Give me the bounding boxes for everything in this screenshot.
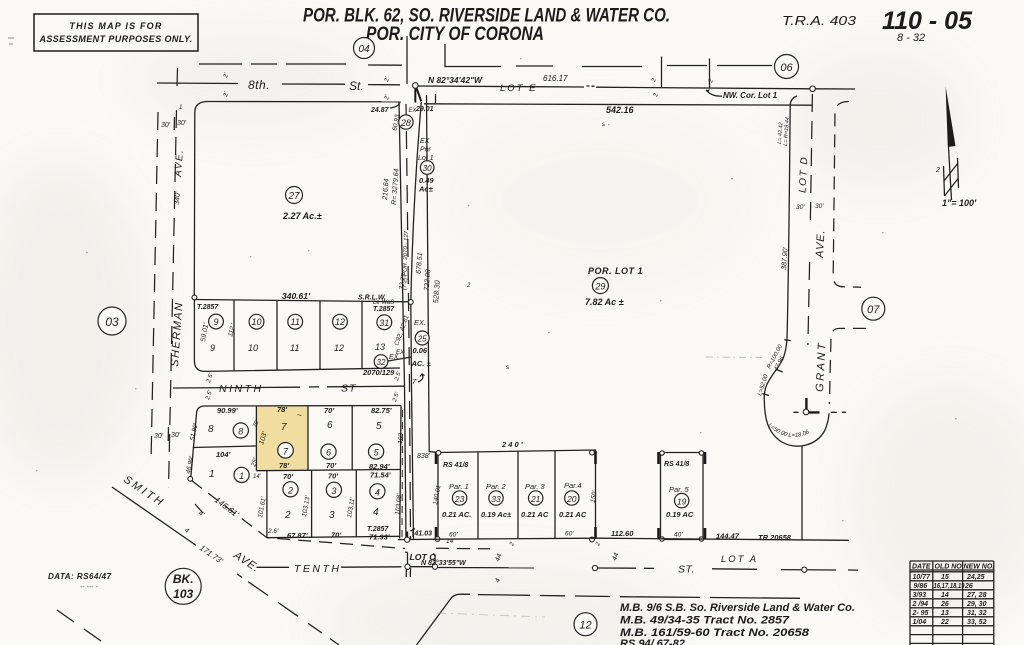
svg-text:13: 13: [375, 342, 385, 352]
svg-text:30': 30': [171, 432, 181, 439]
svg-text:AVE.: AVE.: [173, 148, 186, 178]
svg-text:EX: EX: [409, 108, 418, 114]
svg-text:AVE.: AVE.: [814, 229, 828, 259]
svg-text:24,25: 24,25: [966, 574, 985, 581]
svg-text:29, 30: 29, 30: [966, 601, 987, 608]
svg-text:EX: EX: [420, 138, 430, 145]
svg-text:DATE: DATE: [912, 564, 931, 571]
svg-text:146.61': 146.61': [213, 495, 241, 520]
svg-text:40': 40': [674, 532, 683, 539]
svg-text:M.B. 9/6 S.B. So. Riverside L: M.B. 9/6 S.B. So. Riverside Land & Water…: [620, 602, 855, 614]
svg-text:46.99': 46.99': [185, 455, 196, 474]
svg-text:N 82°34'42"W: N 82°34'42"W: [428, 76, 484, 85]
svg-text:104': 104': [216, 450, 231, 459]
svg-text:3: 3: [331, 486, 336, 496]
svg-text:ST.: ST.: [678, 564, 695, 576]
svg-text:Par. 2: Par. 2: [486, 482, 507, 491]
svg-text:30': 30': [796, 204, 805, 211]
svg-text:70': 70': [324, 406, 334, 415]
svg-text:30': 30': [177, 120, 187, 127]
svg-text:2.5': 2.5': [392, 391, 401, 404]
svg-text:M.B. 49/34-35 Tract No. 2857: M.B. 49/34-35 Tract No. 2857: [620, 615, 790, 627]
svg-text:30: 30: [423, 164, 432, 173]
svg-text:21: 21: [530, 494, 541, 504]
svg-text:8th.: 8th.: [248, 78, 270, 92]
svg-text:St.: St.: [349, 79, 364, 93]
svg-text:T.2857: T.2857: [197, 304, 219, 311]
svg-text:8 - 32: 8 - 32: [897, 32, 925, 44]
svg-text:6: 6: [327, 420, 333, 431]
svg-text:31: 31: [379, 318, 389, 328]
svg-text:s: s: [602, 122, 605, 128]
svg-text:NEW NO.: NEW NO.: [964, 564, 995, 571]
svg-text:Par. 1: Par. 1: [449, 482, 469, 491]
svg-text:0.19 Ac±: 0.19 Ac±: [481, 510, 512, 519]
svg-text:70': 70': [283, 472, 293, 481]
svg-text:10: 10: [251, 317, 261, 327]
svg-text:2: 2: [466, 283, 471, 289]
svg-text:31, 32: 31, 32: [967, 610, 987, 617]
svg-text:-- --- -: -- --- -: [80, 584, 99, 591]
svg-text:M.B. 161/59-60 Tract No. 2065: M.B. 161/59-60 Tract No. 20658: [620, 627, 810, 639]
svg-text:90.99': 90.99': [217, 406, 238, 415]
svg-text:3: 3: [329, 510, 335, 521]
svg-text:2: 2: [653, 92, 660, 98]
svg-text:24.87: 24.87: [370, 107, 390, 114]
svg-text:EX: EX: [396, 350, 405, 356]
svg-text:LOT A: LOT A: [721, 554, 758, 565]
svg-text:70': 70': [326, 461, 336, 470]
svg-text:10/77: 10/77: [913, 574, 932, 581]
svg-text:11: 11: [290, 343, 299, 353]
svg-text:Par. 3: Par. 3: [525, 482, 546, 491]
svg-text:29: 29: [594, 282, 605, 292]
svg-text:2 /94: 2 /94: [912, 601, 929, 608]
svg-text:04: 04: [358, 44, 370, 55]
svg-text:44: 44: [611, 552, 620, 562]
svg-text:LOT D: LOT D: [798, 156, 811, 193]
svg-text:7.82 Ac ±: 7.82 Ac ±: [585, 297, 624, 307]
svg-text:30': 30': [815, 203, 824, 210]
svg-text:14: 14: [941, 592, 949, 599]
svg-text:33: 33: [491, 494, 501, 504]
svg-text:722.08: 722.08: [424, 269, 433, 291]
svg-text:POR. CITY OF CORONA: POR. CITY OF CORONA: [366, 24, 544, 45]
svg-text:112.': 112.': [227, 322, 237, 337]
svg-text:2.6': 2.6': [267, 528, 279, 535]
svg-text:06: 06: [780, 62, 793, 74]
svg-text:~: ~: [297, 411, 302, 420]
svg-text:s: s: [506, 365, 509, 371]
svg-text:14': 14': [253, 474, 262, 480]
svg-text:150': 150': [590, 489, 599, 503]
svg-text:03: 03: [105, 315, 119, 329]
svg-text:2: 2: [284, 510, 291, 521]
svg-text:28: 28: [400, 118, 411, 128]
svg-text:67.87': 67.87': [287, 531, 308, 540]
svg-text:NINTH: NINTH: [219, 383, 264, 395]
svg-text:30': 30': [161, 122, 171, 129]
svg-text:110 - 05: 110 - 05: [882, 7, 973, 35]
svg-text:TENTH: TENTH: [294, 563, 342, 575]
svg-text:11: 11: [291, 317, 300, 327]
svg-text:26: 26: [964, 583, 973, 590]
svg-text:144.47: 144.47: [716, 532, 740, 541]
svg-text:THIS MAP IS FOR: THIS MAP IS FOR: [69, 21, 162, 31]
svg-text:71.93': 71.93': [369, 533, 390, 542]
svg-text:103.13': 103.13': [301, 495, 312, 518]
svg-text:2.27 Ac.±: 2.27 Ac.±: [282, 211, 322, 221]
svg-text:RS 41/8: RS 41/8: [664, 461, 689, 468]
svg-text:101.61': 101.61': [257, 496, 268, 519]
svg-text:10: 10: [248, 343, 258, 353]
svg-text:171.73': 171.73': [198, 543, 225, 566]
svg-text:RS 41/8: RS 41/8: [443, 462, 468, 469]
svg-text:NW. Cor. Lot 1: NW. Cor. Lot 1: [723, 91, 778, 100]
svg-text:9/86: 9/86: [914, 583, 928, 590]
svg-text:1: 1: [209, 469, 215, 480]
svg-text:8: 8: [208, 424, 214, 435]
svg-text:2.5': 2.5': [394, 370, 403, 383]
svg-text:70': 70': [328, 472, 338, 481]
svg-text:Ac±: Ac±: [418, 185, 434, 194]
svg-text:0.19 AC: 0.19 AC: [666, 510, 694, 519]
svg-text:22: 22: [940, 619, 949, 626]
svg-text:7': 7': [412, 379, 418, 386]
svg-text:838': 838': [417, 453, 431, 460]
svg-text:0.21 AC: 0.21 AC: [521, 510, 549, 519]
svg-text:12: 12: [334, 343, 344, 353]
svg-text:2: 2: [287, 485, 293, 495]
svg-text:340.61': 340.61': [282, 291, 311, 301]
svg-text:1/04: 1/04: [913, 619, 927, 626]
svg-text:Par. 5: Par. 5: [669, 485, 690, 494]
svg-text:2 4 0 ': 2 4 0 ': [501, 440, 523, 449]
svg-text:30': 30': [154, 433, 164, 440]
svg-text:51.99': 51.99': [189, 422, 200, 441]
svg-text:TR 20658: TR 20658: [758, 533, 792, 542]
svg-text:27: 27: [287, 191, 300, 202]
svg-text:OLD NO: OLD NO: [935, 564, 963, 571]
svg-text:82.75': 82.75': [371, 406, 392, 415]
svg-text:8: 8: [238, 427, 243, 437]
svg-text:13: 13: [941, 610, 949, 617]
svg-text:Par.4: Par.4: [564, 481, 582, 490]
svg-text:Por: Por: [420, 147, 432, 154]
svg-text:340': 340': [174, 191, 182, 205]
svg-text:4: 4: [375, 487, 380, 497]
svg-text:23: 23: [454, 494, 465, 504]
svg-text:T.R.A. 403: T.R.A. 403: [782, 13, 857, 28]
svg-text:7: 7: [281, 422, 287, 433]
svg-text:2': 2': [384, 94, 391, 102]
svg-text:L=50.00 L=18.06: L=50.00 L=18.06: [766, 423, 810, 439]
svg-text:4: 4: [373, 507, 379, 518]
svg-text:78': 78': [277, 405, 287, 414]
svg-text:29.01: 29.01: [415, 106, 434, 113]
svg-text:SMITH: SMITH: [121, 474, 166, 510]
svg-text:DATA: RS64/47: DATA: RS64/47: [48, 572, 112, 581]
svg-text:25: 25: [417, 335, 427, 344]
svg-text:41.03: 41.03: [414, 531, 433, 538]
svg-text:2.5': 2.5': [205, 389, 214, 402]
svg-text:1: 1: [179, 105, 182, 111]
svg-text:T.2857: T.2857: [373, 306, 395, 313]
svg-text:78': 78': [279, 461, 289, 470]
svg-text:AVE.: AVE.: [231, 549, 262, 575]
svg-text:3/93: 3/93: [913, 592, 927, 599]
svg-text:12: 12: [579, 620, 591, 632]
svg-text:ST: ST: [341, 383, 357, 395]
svg-text:71.54': 71.54': [370, 471, 391, 480]
svg-text:103: 103: [397, 432, 405, 444]
svg-text:14: 14: [446, 538, 454, 545]
svg-text:19: 19: [677, 496, 687, 506]
svg-text:2: 2: [935, 167, 940, 174]
svg-text:9: 9: [213, 317, 218, 327]
svg-text:07: 07: [867, 304, 880, 316]
svg-text:GRANT: GRANT: [814, 341, 829, 393]
svg-text:0.21 AC: 0.21 AC: [559, 510, 587, 519]
svg-text:20: 20: [566, 494, 577, 504]
svg-text:2.5': 2.5': [206, 372, 215, 385]
svg-text:0.06: 0.06: [413, 346, 428, 355]
svg-text:16,17,18,19: 16,17,18,19: [934, 583, 965, 590]
svg-text:26: 26: [940, 601, 949, 608]
svg-text:616.17: 616.17: [543, 74, 568, 83]
svg-text:2': 2': [384, 76, 391, 84]
svg-text:BK.: BK.: [173, 572, 194, 586]
svg-text:1"= 100': 1"= 100': [942, 198, 977, 208]
svg-text:2070/129: 2070/129: [362, 368, 395, 377]
svg-text:4: 4: [183, 527, 190, 535]
svg-text:R= 3279.64: R= 3279.64: [391, 168, 401, 205]
svg-text:678.51: 678.51: [416, 252, 425, 274]
svg-text:27, 28: 27, 28: [966, 592, 987, 599]
svg-text:AC. ±: AC. ±: [411, 359, 432, 368]
svg-text:216.64: 216.64: [382, 178, 391, 201]
svg-text:15: 15: [941, 574, 949, 581]
svg-text:N 82°33'55"W: N 82°33'55"W: [421, 559, 467, 567]
svg-text:12: 12: [335, 317, 345, 327]
svg-text:SHERMAN: SHERMAN: [169, 301, 186, 367]
svg-text:2- 95: 2- 95: [912, 610, 929, 617]
svg-text:9: 9: [210, 343, 215, 353]
svg-text:33, 52: 33, 52: [967, 619, 987, 626]
svg-text:0.21 AC.: 0.21 AC.: [442, 510, 471, 519]
svg-text:70': 70': [331, 531, 341, 540]
svg-text:32: 32: [377, 358, 386, 367]
svg-text:6: 6: [326, 448, 331, 458]
svg-text:112.60: 112.60: [611, 529, 634, 538]
svg-text:L=52.00: L=52.00: [757, 373, 770, 396]
svg-text:2: 2: [651, 77, 658, 83]
svg-text:5: 5: [376, 421, 382, 432]
svg-text:103: 103: [173, 587, 193, 601]
svg-text:RS 94/ 67-82: RS 94/ 67-82: [620, 638, 685, 645]
svg-text:EX.: EX.: [414, 318, 426, 327]
svg-text:ASSESSMENT PURPOSES ONLY.: ASSESSMENT PURPOSES ONLY.: [38, 34, 192, 44]
svg-text:2: 2: [509, 541, 516, 548]
svg-text:103.11': 103.11': [346, 496, 357, 518]
svg-text:60': 60': [565, 531, 574, 538]
svg-text:140.01: 140.01: [432, 484, 442, 505]
svg-text:59.01': 59.01': [200, 322, 210, 342]
svg-text:POR. LOT 1: POR. LOT 1: [588, 266, 643, 276]
svg-text:542.16: 542.16: [606, 105, 635, 115]
svg-text:LOT E: LOT E: [500, 83, 537, 94]
svg-text:1: 1: [239, 471, 244, 481]
svg-text:528.30: 528.30: [431, 279, 442, 303]
svg-text:Le WaS: Le WaS: [373, 300, 394, 306]
svg-text:2: 2: [595, 541, 602, 548]
